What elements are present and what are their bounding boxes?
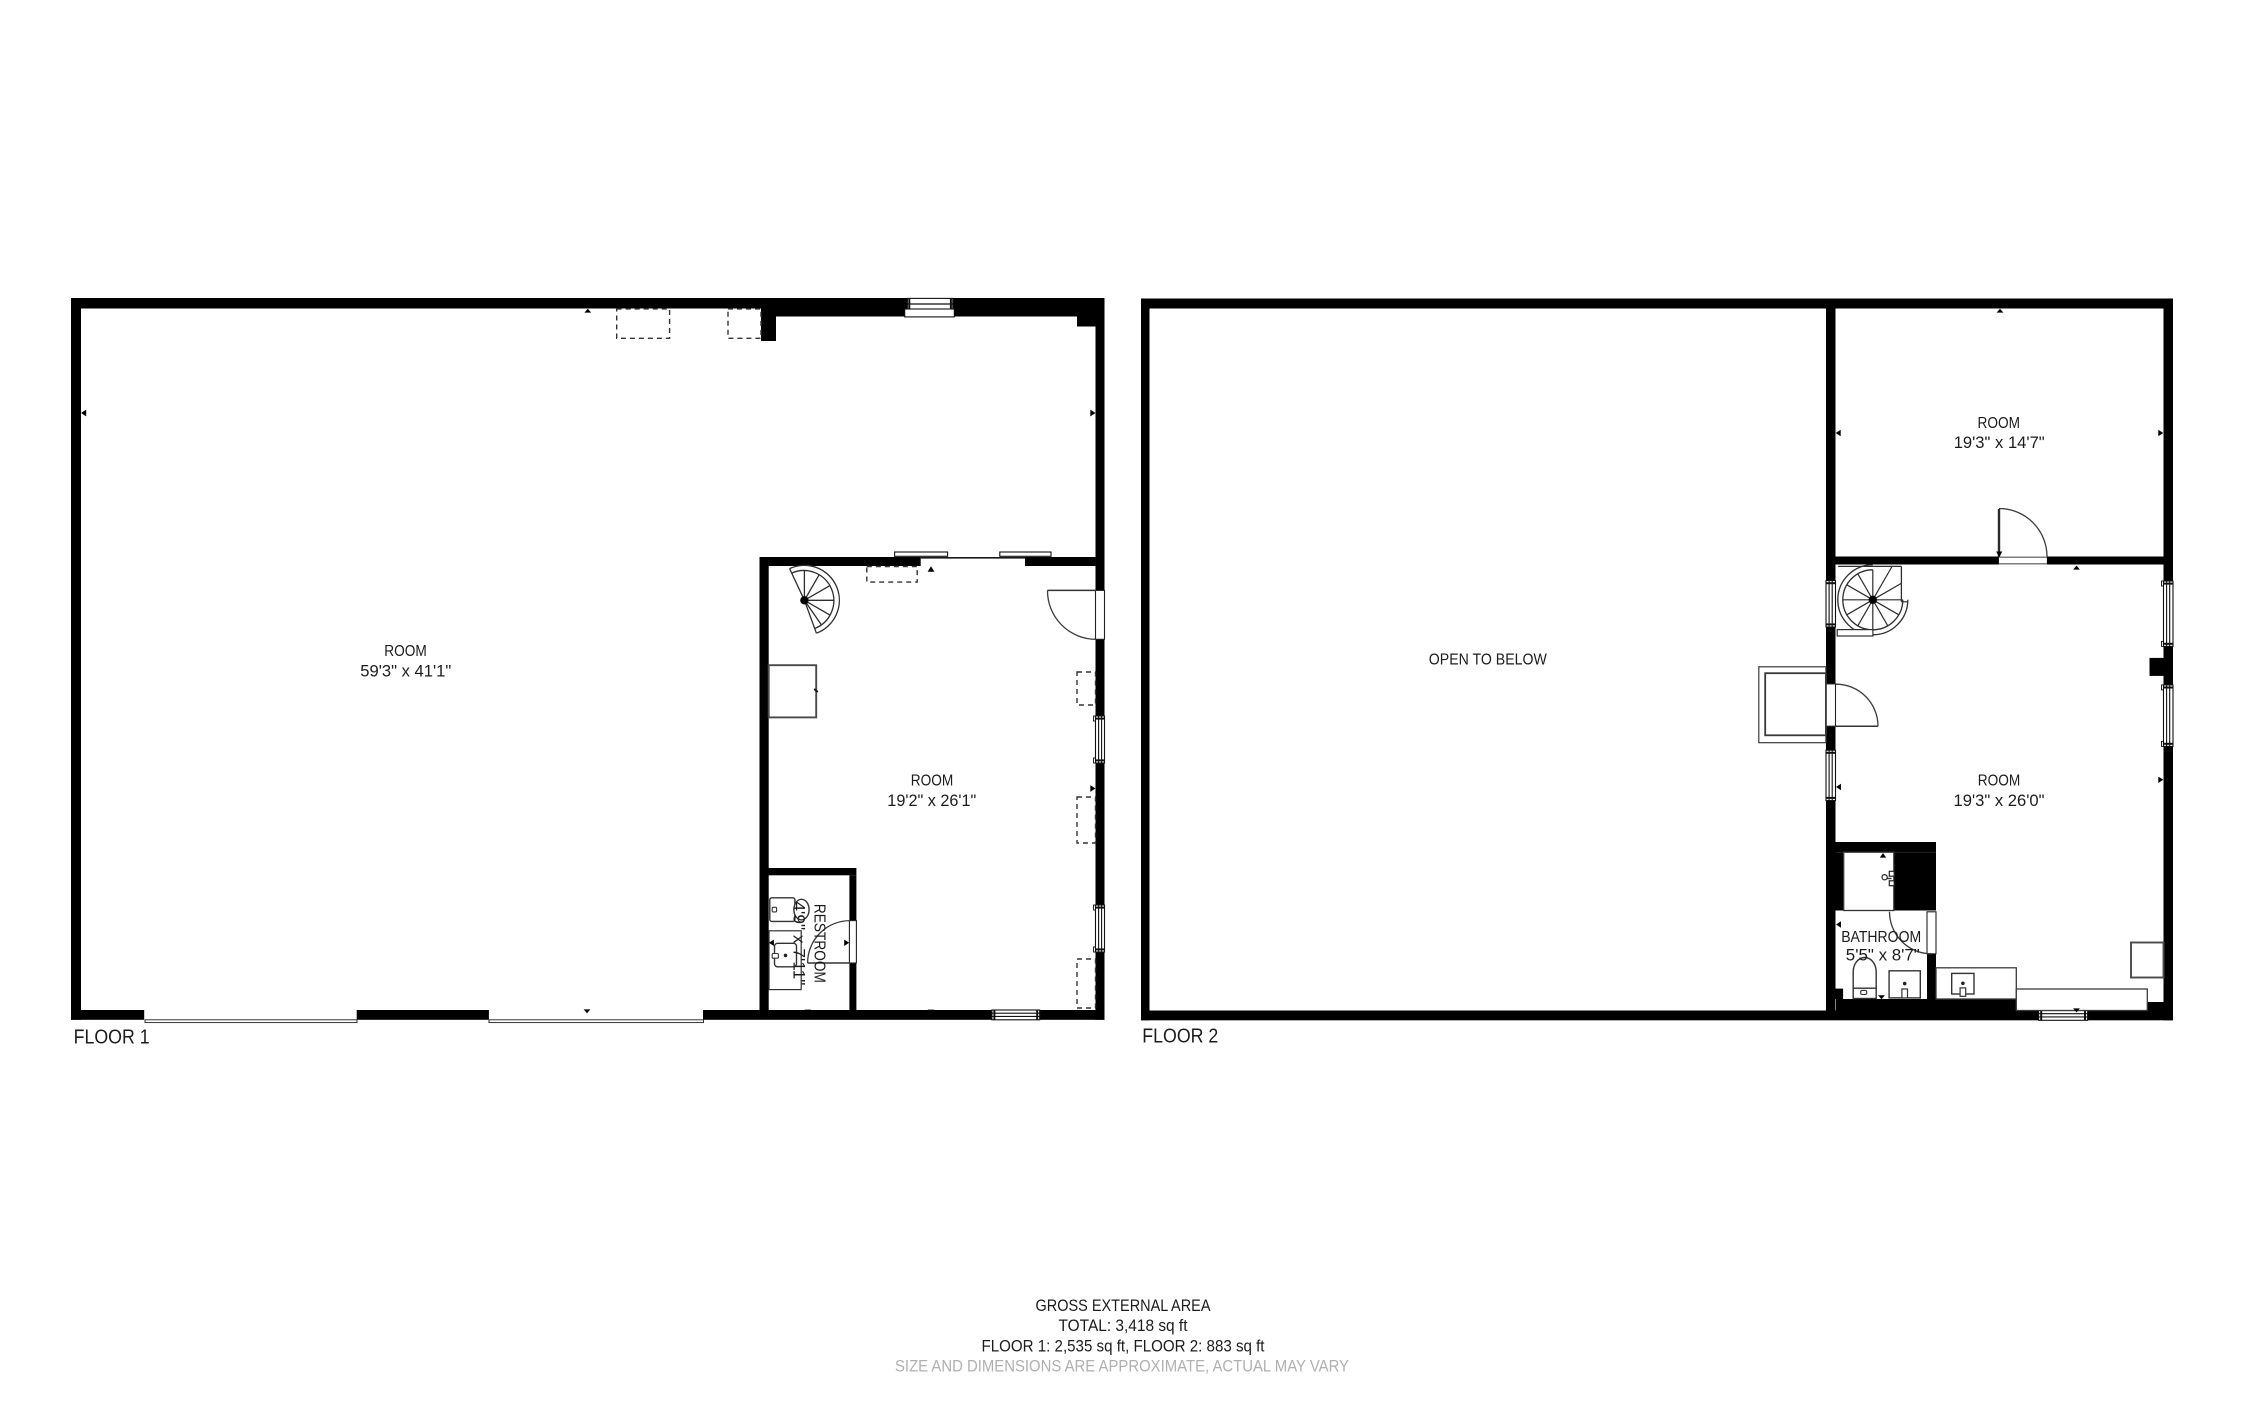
svg-text:4'9" x 7'11": 4'9" x 7'11" — [790, 901, 809, 985]
svg-text:FLOOR 1: 2,535 sq ft, FLOOR 2:: FLOOR 1: 2,535 sq ft, FLOOR 2: 883 sq ft — [982, 1336, 1265, 1355]
svg-text:FLOOR 1: FLOOR 1 — [74, 1026, 150, 1048]
svg-text:OPEN TO BELOW: OPEN TO BELOW — [1429, 652, 1548, 669]
svg-text:ROOM: ROOM — [1978, 415, 2021, 432]
svg-text:5'5" x 8'7": 5'5" x 8'7" — [1846, 946, 1920, 965]
svg-text:GROSS EXTERNAL AREA: GROSS EXTERNAL AREA — [1036, 1296, 1212, 1315]
svg-text:BATHROOM: BATHROOM — [1841, 929, 1921, 946]
svg-text:SIZE AND DIMENSIONS ARE APPROX: SIZE AND DIMENSIONS ARE APPROXIMATE, ACT… — [895, 1357, 1349, 1376]
svg-text:FLOOR 2: FLOOR 2 — [1142, 1026, 1218, 1048]
svg-text:ROOM: ROOM — [911, 772, 954, 789]
svg-text:19'2" x 26'1": 19'2" x 26'1" — [887, 791, 976, 810]
svg-text:TOTAL: 3,418 sq ft: TOTAL: 3,418 sq ft — [1059, 1316, 1188, 1335]
svg-text:RESTROOM: RESTROOM — [811, 904, 828, 983]
svg-text:ROOM: ROOM — [1978, 772, 2021, 789]
svg-text:59'3" x 41'1": 59'3" x 41'1" — [360, 662, 451, 681]
svg-text:ROOM: ROOM — [384, 643, 427, 660]
svg-text:19'3" x 14'7": 19'3" x 14'7" — [1954, 433, 2045, 452]
svg-text:19'3" x 26'0": 19'3" x 26'0" — [1954, 791, 2045, 810]
